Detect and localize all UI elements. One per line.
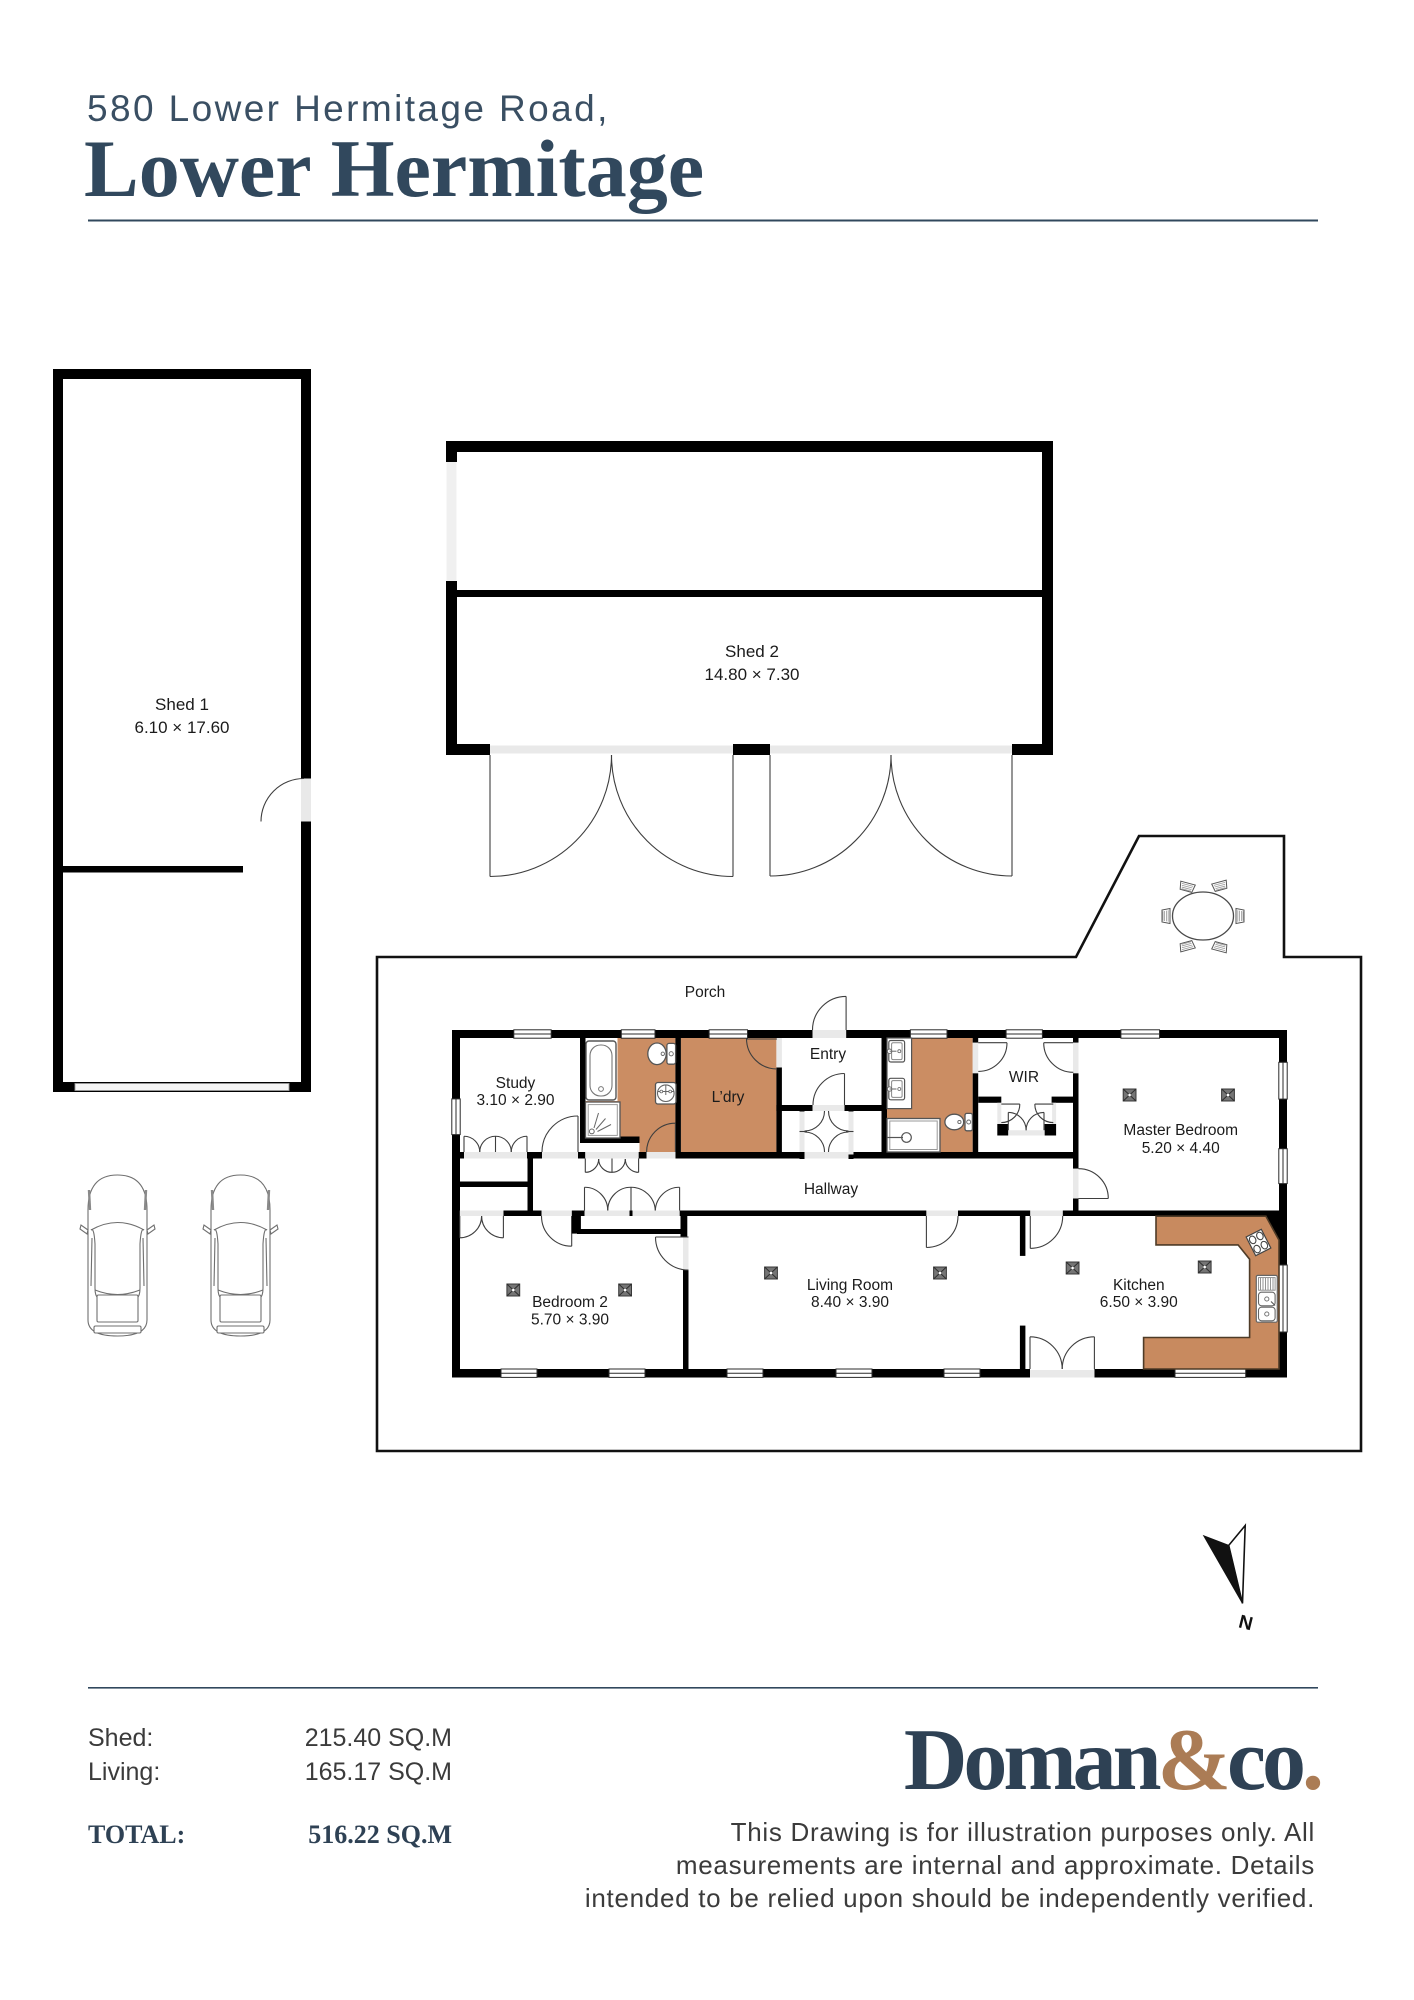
svg-text:165.17 SQ.M: 165.17 SQ.M — [305, 1758, 452, 1786]
svg-text:Doman&co.: Doman&co. — [904, 1712, 1321, 1809]
svg-text:5.70 × 3.90: 5.70 × 3.90 — [531, 1312, 609, 1329]
svg-text:Kitchen: Kitchen — [1113, 1277, 1165, 1294]
svg-text:6.50 × 3.90: 6.50 × 3.90 — [1100, 1294, 1178, 1311]
svg-text:measurements are internal and: measurements are internal and approximat… — [676, 1850, 1315, 1880]
svg-text:L’dry: L’dry — [712, 1089, 745, 1106]
svg-text:Shed 2: Shed 2 — [725, 642, 779, 661]
svg-text:Hallway: Hallway — [804, 1181, 859, 1198]
svg-text:215.40 SQ.M: 215.40 SQ.M — [305, 1724, 452, 1752]
svg-text:intended to be relied upon sho: intended to be relied upon should be ind… — [585, 1883, 1315, 1913]
svg-text:TOTAL:: TOTAL: — [88, 1820, 185, 1849]
svg-text:Master Bedroom: Master Bedroom — [1123, 1122, 1238, 1139]
svg-text:5.20 × 4.40: 5.20 × 4.40 — [1142, 1140, 1220, 1157]
svg-text:Study: Study — [496, 1075, 536, 1092]
svg-text:8.40 × 3.90: 8.40 × 3.90 — [811, 1294, 889, 1311]
svg-text:14.80 × 7.30: 14.80 × 7.30 — [704, 665, 799, 684]
svg-text:Shed 1: Shed 1 — [155, 695, 209, 714]
svg-text:Lower Hermitage: Lower Hermitage — [84, 123, 704, 214]
svg-text:6.10 × 17.60: 6.10 × 17.60 — [134, 718, 229, 737]
svg-text:516.22 SQ.M: 516.22 SQ.M — [308, 1820, 452, 1849]
svg-text:Living:: Living: — [88, 1758, 160, 1786]
svg-text:Entry: Entry — [810, 1046, 846, 1063]
svg-text:Porch: Porch — [685, 984, 726, 1001]
svg-text:Living Room: Living Room — [807, 1277, 893, 1294]
svg-text:3.10 × 2.90: 3.10 × 2.90 — [477, 1092, 555, 1109]
svg-text:WIR: WIR — [1009, 1069, 1039, 1086]
svg-text:Bedroom 2: Bedroom 2 — [532, 1294, 608, 1311]
svg-text:Shed:: Shed: — [88, 1724, 153, 1752]
svg-text:This Drawing is for illustrati: This Drawing is for illustration purpose… — [731, 1817, 1315, 1847]
